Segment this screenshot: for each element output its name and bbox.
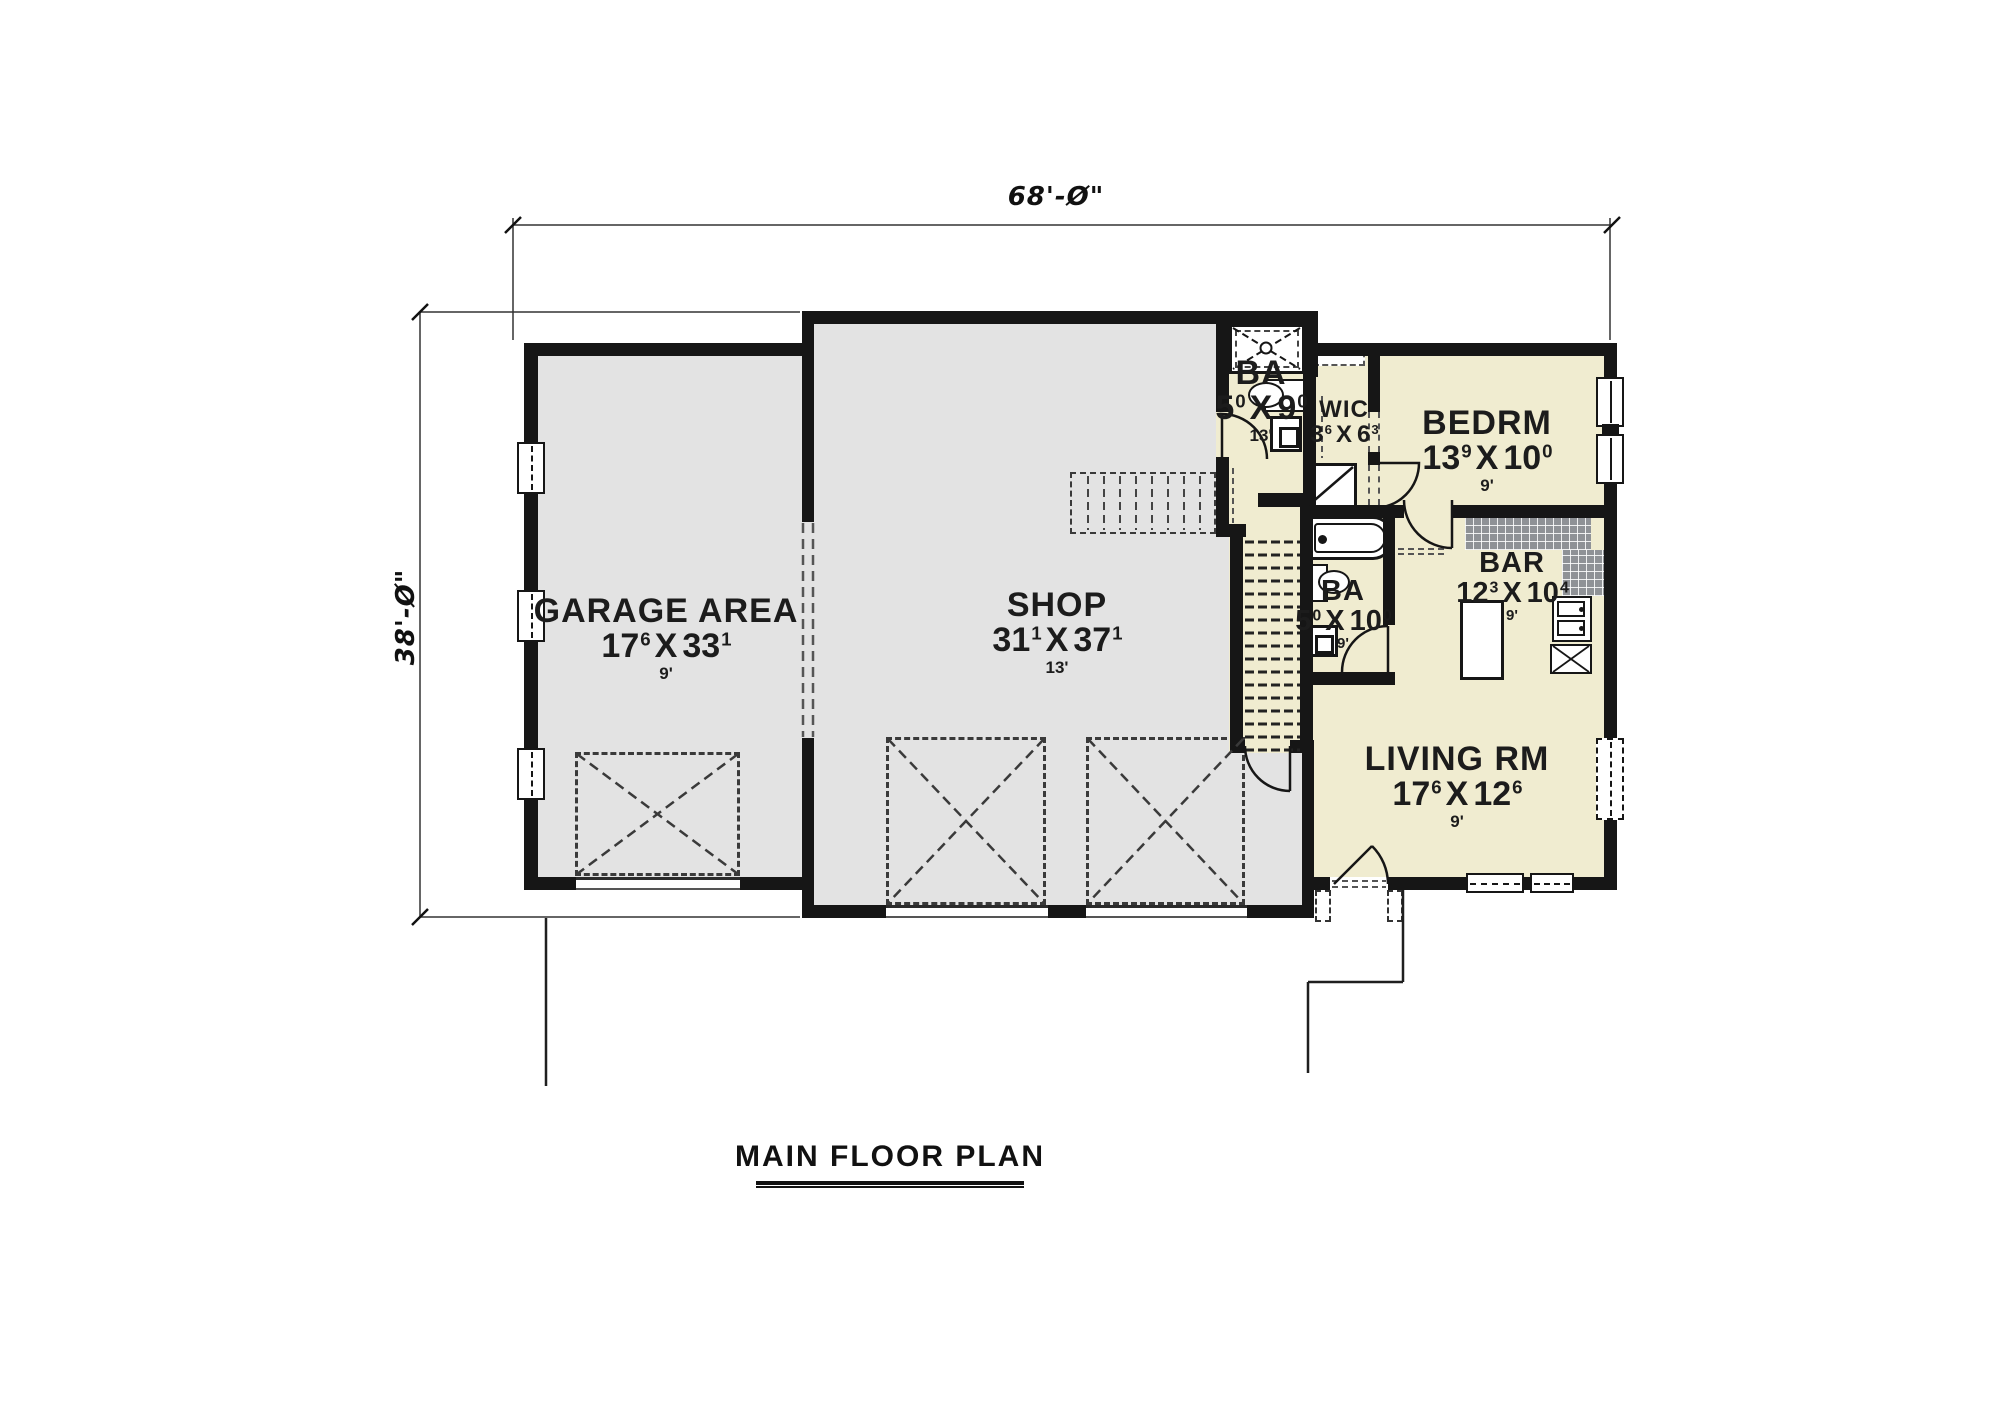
room-name: BAR [1456, 548, 1568, 578]
room-label-wic: WIC 36X63 [1310, 398, 1377, 448]
room-label-shop: SHOP 311X371 13' [992, 588, 1121, 676]
dimension-overall-width: 68'-Ø" [1008, 182, 1105, 212]
window [517, 442, 545, 494]
wall-shop-ext-right [1302, 740, 1314, 918]
title-underline [756, 1181, 1024, 1188]
room-label-bath2: BA 50X100 9' [1295, 576, 1391, 652]
faucet-dot [1579, 626, 1584, 631]
room-name: BA [1215, 356, 1306, 391]
wall-garage-top [524, 343, 814, 356]
room-ceiling-height: 13' [992, 659, 1121, 677]
wall-hall-bottom-a [1233, 740, 1245, 753]
room-dimensions: 36X63 [1310, 423, 1377, 448]
hall-living-opening [1404, 505, 1452, 518]
window [1596, 377, 1624, 427]
window-glass-line [531, 752, 533, 796]
window-mullion-dot [1602, 424, 1619, 436]
wall-bedroom-bottom [1452, 505, 1604, 518]
floor-plan-canvas: GARAGE AREA 176X331 9' SHOP 311X371 13' … [0, 0, 2000, 1410]
window [1596, 738, 1624, 820]
room-label-bedroom: BEDRM 139X100 9' [1422, 406, 1552, 494]
room-ceiling-height: 9' [1456, 608, 1568, 624]
wall-divider-lower [802, 738, 814, 905]
room-name: GARAGE AREA [534, 594, 799, 629]
wall-stair-jog [1216, 524, 1246, 537]
room-name: SHOP [992, 588, 1121, 623]
shop-door-opening [886, 905, 1048, 918]
room-ceiling-height: 9' [534, 665, 799, 683]
garage-door-opening [576, 877, 740, 890]
porch-lines [546, 890, 1403, 1086]
window [1466, 873, 1524, 893]
garage-door-xbox [1086, 737, 1245, 905]
hall-shop-door-opening [1245, 740, 1290, 753]
bathtub [1307, 516, 1393, 560]
window [1596, 434, 1624, 484]
wall-divider-upper [802, 324, 814, 522]
garage-door-xbox [575, 752, 740, 876]
room-label-living: LIVING RM 176X126 9' [1365, 742, 1550, 830]
room-ceiling-height: 9' [1365, 813, 1550, 831]
wall-bedroom-top [1316, 343, 1617, 356]
window-glass-line [1470, 883, 1520, 885]
wall-stair-left [1230, 537, 1243, 753]
entry-door-opening [1330, 877, 1388, 890]
room-dimensions: 176X126 [1365, 777, 1550, 812]
room-ceiling-height: 13' [1215, 427, 1306, 445]
room-label-garage: GARAGE AREA 176X331 9' [534, 594, 799, 682]
room-name: WIC [1310, 398, 1377, 423]
room-dimensions: 176X331 [534, 629, 799, 664]
wall-shop-top [802, 311, 1318, 324]
plan-title-block: MAIN FLOOR PLAN [735, 1140, 1045, 1188]
porch-post [1387, 890, 1403, 922]
room-name: LIVING RM [1365, 742, 1550, 777]
porch-post [1315, 890, 1331, 922]
dimension-overall-height: 38'-Ø" [391, 569, 421, 666]
window-glass-line [1610, 742, 1612, 816]
room-name: BA [1295, 576, 1391, 606]
room-dimensions: 50X90 [1215, 391, 1306, 426]
room-ceiling-height: 9' [1422, 477, 1552, 495]
window [1530, 873, 1574, 893]
room-ceiling-height: 9' [1295, 636, 1391, 652]
upper-stairs-dashed-box [1070, 472, 1216, 534]
room-name: BEDRM [1422, 406, 1552, 441]
bedroom-door-opening [1368, 465, 1380, 505]
window [517, 748, 545, 800]
window-glass-line [1610, 381, 1612, 423]
room-dimensions: 123X104 [1456, 578, 1568, 608]
window-glass-line [1610, 438, 1612, 480]
divider-opening [800, 522, 816, 738]
garage-door-xbox [886, 737, 1046, 905]
plan-title: MAIN FLOOR PLAN [735, 1140, 1045, 1174]
range-appliance [1550, 644, 1592, 674]
bar-counter-top [1465, 518, 1591, 550]
room-dimensions: 50X100 [1295, 606, 1391, 636]
room-dimensions: 311X371 [992, 623, 1121, 658]
window-glass-line [531, 446, 533, 490]
tub-drain [1318, 535, 1327, 544]
wall-bedroom-left-b [1368, 452, 1380, 465]
shop-door-opening [1086, 905, 1247, 918]
wall-bath2-bottom [1303, 672, 1395, 685]
room-label-bath1: BA 50X90 13' [1215, 356, 1306, 444]
room-dimensions: 139X100 [1422, 441, 1552, 476]
window-glass-line [1534, 883, 1570, 885]
faucet-dot [1579, 607, 1584, 612]
room-label-bar: BAR 123X104 9' [1456, 548, 1568, 624]
